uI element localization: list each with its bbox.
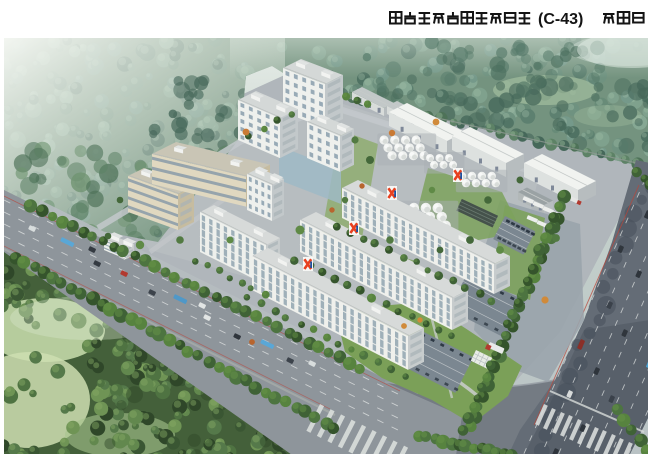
- svg-text:(C-43): (C-43): [538, 11, 583, 28]
